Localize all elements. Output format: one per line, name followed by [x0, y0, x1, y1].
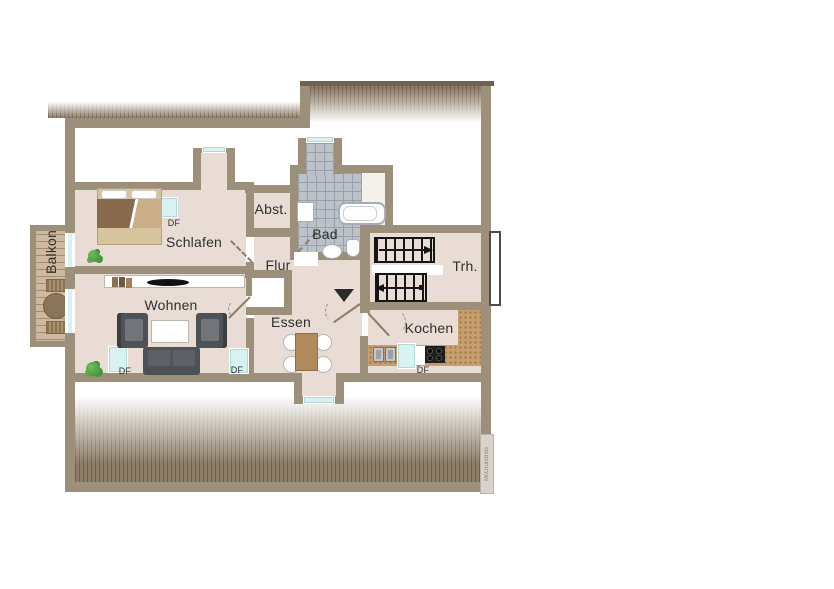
wall-outer-bottom [65, 482, 491, 492]
balcony-chair [46, 279, 66, 292]
abst-label: Abst. [255, 201, 288, 217]
sofa-cushions [148, 350, 195, 366]
niche [252, 278, 284, 307]
wall [360, 336, 368, 374]
wall [344, 373, 368, 382]
stairs-up-arrow-line [379, 249, 425, 251]
pillow [131, 190, 157, 199]
entrance-door-arc [325, 300, 343, 322]
wall [284, 270, 292, 315]
wohnen-door-arc [228, 300, 246, 318]
kitchen-sink [373, 347, 384, 362]
kochen-label: Kochen [405, 320, 454, 336]
skylight-kochen [397, 343, 416, 369]
wall [360, 302, 481, 310]
roof-hatch-bottom [75, 396, 481, 482]
sink [322, 244, 342, 259]
coffee-table [151, 320, 189, 343]
floor-plan: Balkon Schlafen Wohnen Flur Abst. Bad Tr… [0, 0, 834, 589]
roof-hatch-top-left [48, 100, 310, 118]
exterior-door [489, 231, 501, 306]
wall [360, 225, 370, 313]
bad-door-opening [294, 252, 318, 266]
kochen-door-arc [386, 310, 406, 334]
wall-step [300, 83, 310, 128]
arrow-left-icon [375, 284, 384, 292]
armchair-cushion [201, 319, 219, 341]
df-label-wohnen-left: DF [119, 366, 131, 376]
schlafen-dormer-floor [201, 153, 227, 190]
kitchen-worktop [416, 346, 425, 365]
roof-fade [75, 396, 481, 482]
dormer-window [306, 136, 334, 143]
df-label-wohnen-right: DF [231, 365, 243, 375]
stairs-down-arrow-line [382, 287, 420, 289]
arrow-right-icon [424, 246, 433, 254]
stove [425, 346, 445, 363]
dormer-window [202, 146, 226, 153]
stairs-dot [419, 285, 424, 290]
wohnen-label: Wohnen [144, 297, 197, 313]
wall [360, 225, 481, 233]
bad-dormer-tiles [306, 143, 334, 175]
blanket [97, 199, 162, 228]
pillow [101, 190, 127, 199]
essen-bay-floor [302, 373, 336, 396]
roof-fade [310, 86, 481, 126]
washing-machine [297, 202, 314, 222]
burner-icon [427, 355, 433, 361]
dining-table [295, 333, 318, 371]
watermark: McGrundriss [480, 434, 494, 494]
wall [30, 225, 36, 347]
bay-window [303, 396, 335, 404]
schlafen-label: Schlafen [166, 234, 222, 250]
balkon-label: Balkon [43, 230, 59, 274]
watermark-text: McGrundriss [484, 447, 490, 481]
roof-fade [48, 100, 310, 118]
wall [227, 150, 235, 190]
plant [86, 362, 100, 376]
balcony-door [65, 289, 75, 333]
wall-outer-top-left [65, 118, 310, 128]
skylight-schlafen [160, 197, 178, 218]
wall [193, 150, 201, 190]
essen-label: Essen [271, 314, 311, 330]
balcony-door [65, 233, 75, 267]
kitchen-counter-right [458, 310, 481, 366]
tv [147, 279, 189, 286]
burner-icon [436, 355, 442, 361]
burner-icon [427, 348, 433, 354]
wall [246, 182, 254, 228]
wall [246, 373, 296, 382]
toilet [346, 239, 360, 257]
trh-label: Trh. [452, 258, 477, 274]
wall [298, 140, 306, 174]
roof-edge [300, 81, 494, 86]
wall [385, 165, 393, 225]
balcony-chair [46, 321, 66, 334]
armchair-cushion [125, 319, 143, 341]
plant [88, 250, 100, 262]
df-label-kochen: DF [417, 365, 429, 375]
wall [75, 266, 246, 274]
kitchen-sink [385, 347, 396, 362]
bathtub-inner [343, 206, 377, 221]
flur-label: Flur [266, 257, 291, 273]
roof-hatch-top-right [310, 86, 481, 126]
burner-icon [436, 348, 442, 354]
df-label-schlafen: DF [168, 218, 180, 228]
bad-label: Bad [312, 226, 338, 242]
wall [334, 140, 342, 174]
books [112, 277, 118, 287]
